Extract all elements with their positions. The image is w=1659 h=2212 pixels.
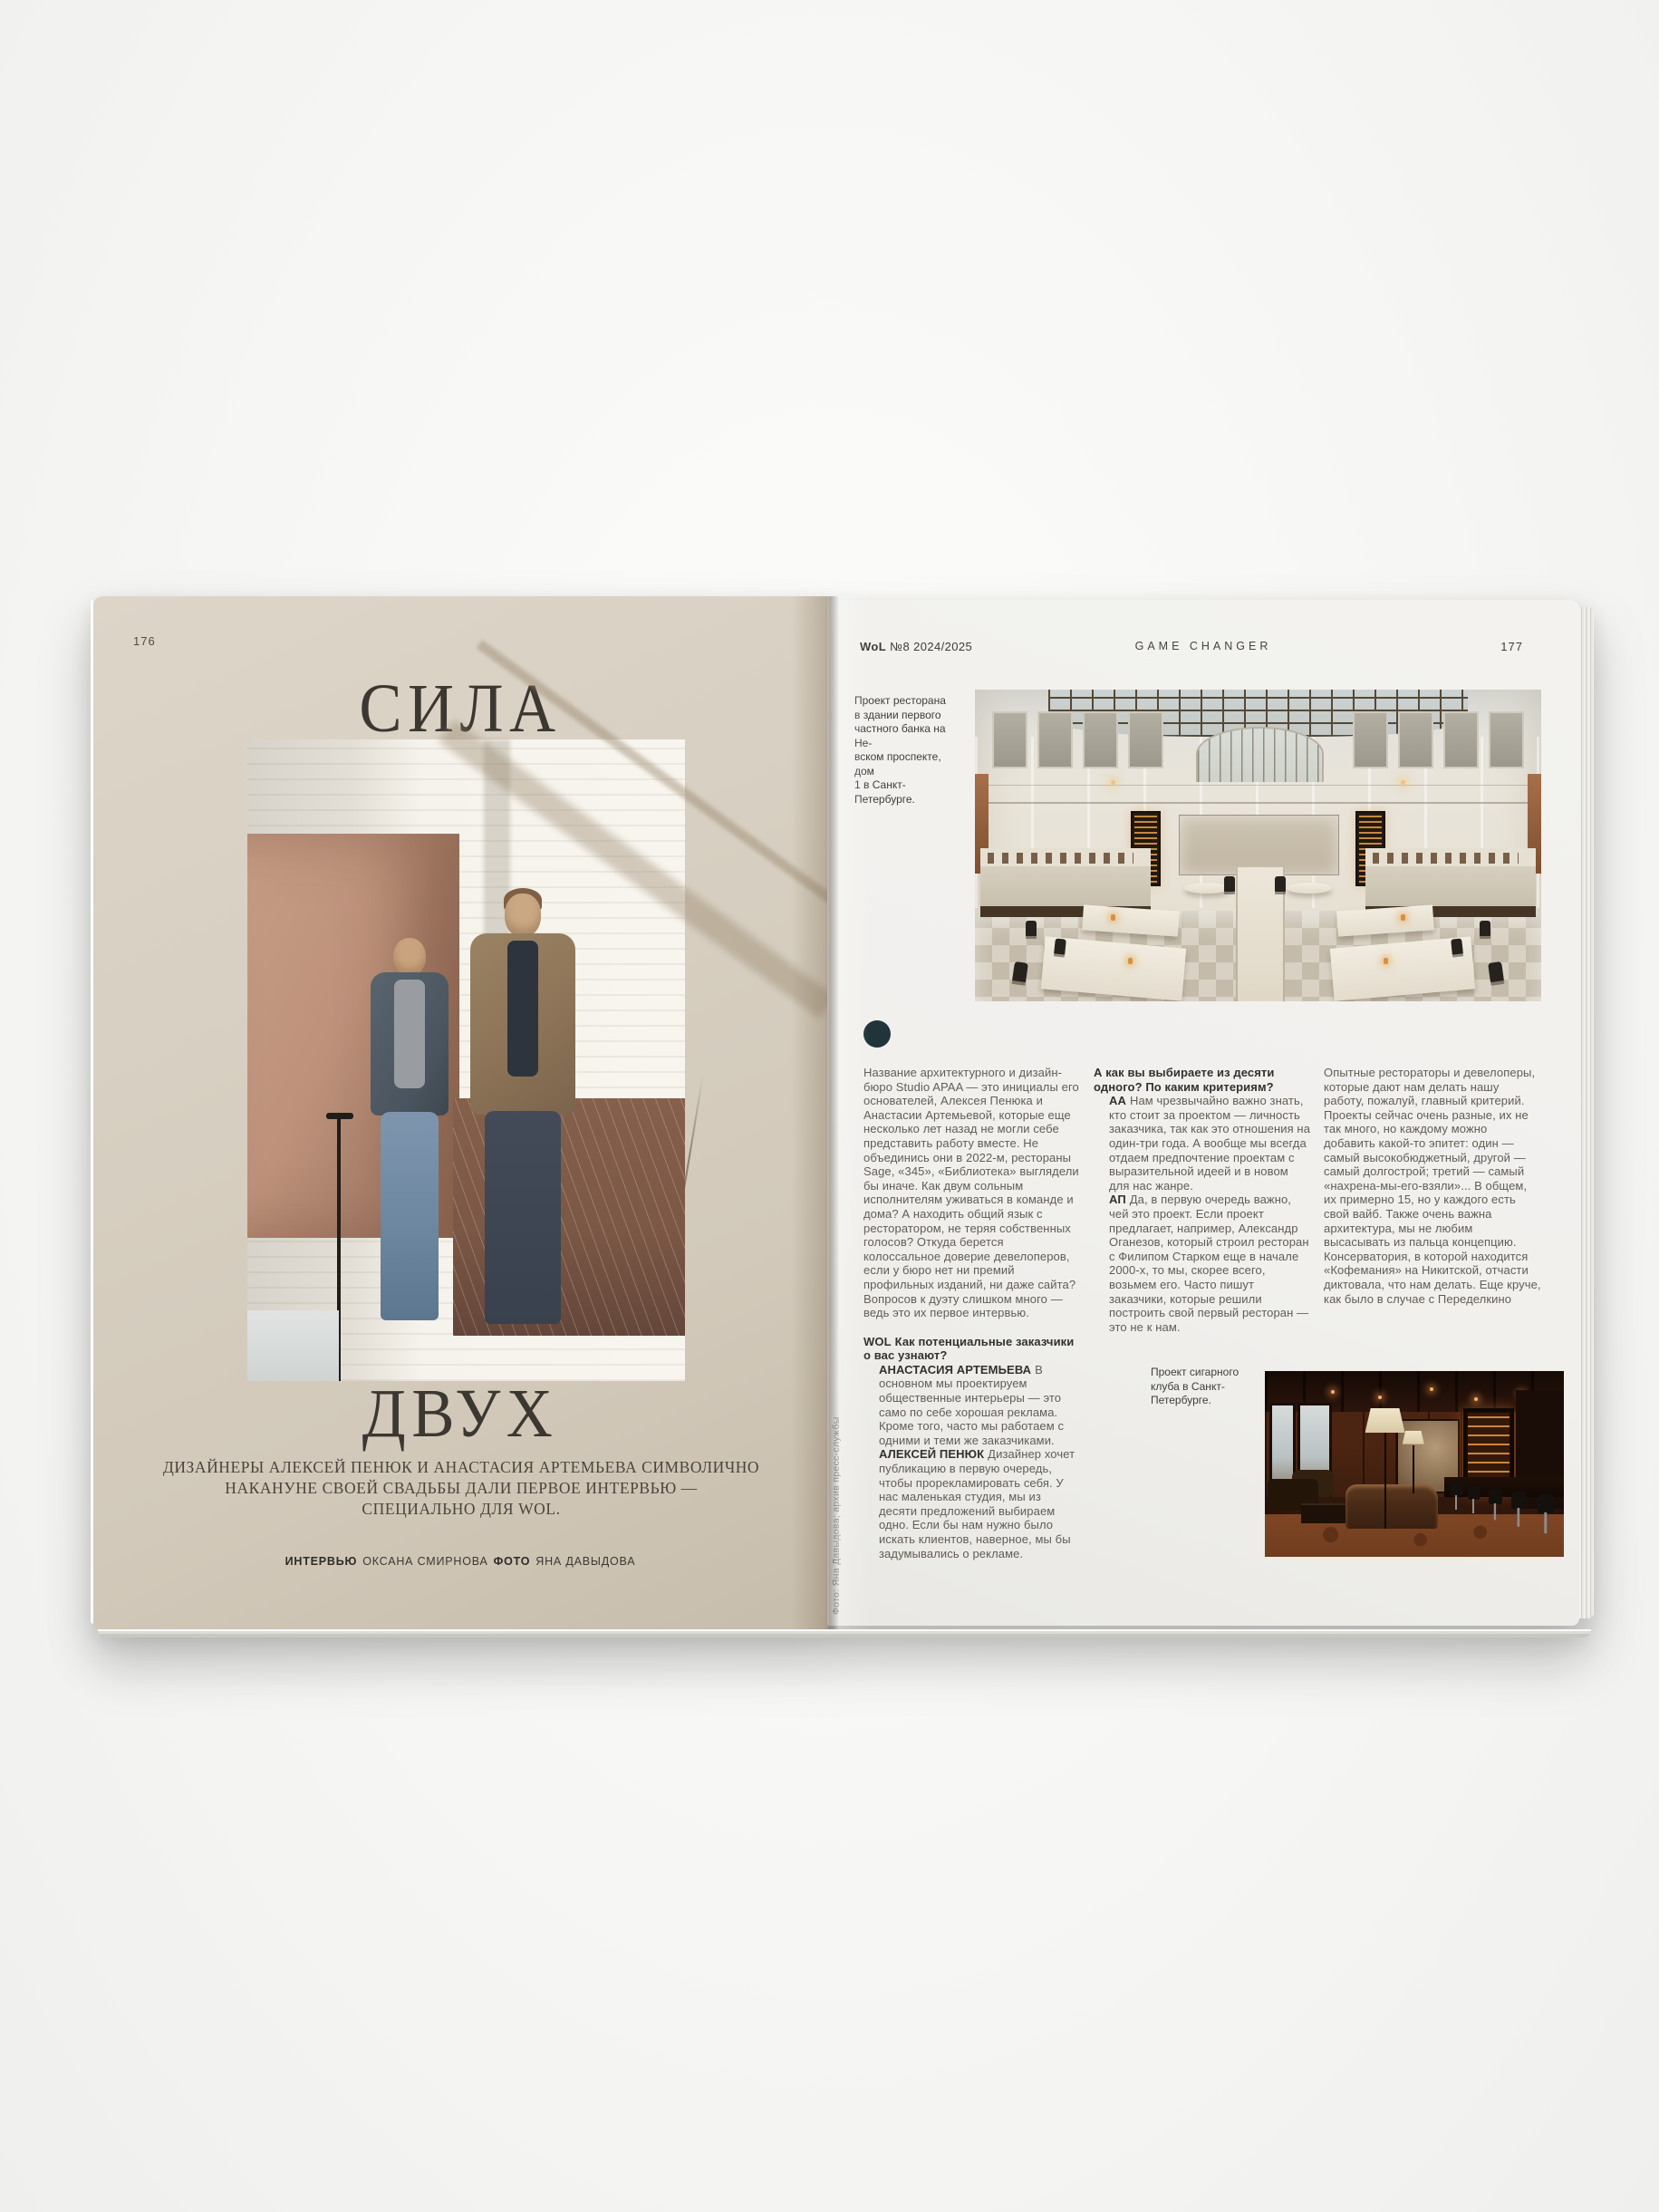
- answer-aa: ААНам чрезвычайно важно знать, кто стоит…: [1094, 1094, 1311, 1193]
- bar-stool: [1511, 1492, 1527, 1510]
- floor-lamp-head: [326, 1113, 353, 1119]
- right-page-stack: [1579, 607, 1594, 1618]
- vertical-photo-credit: Фото: Яна Давыдова; архив пресс-службы: [831, 1377, 842, 1615]
- question-1: WOLКак потенциальные заказчики о вас узн…: [863, 1335, 1081, 1363]
- clerestory-window: [1037, 711, 1073, 768]
- designer-man-figure: [467, 893, 581, 1381]
- floor-lamp-shade: [1365, 1408, 1405, 1433]
- answer-text: Дизайнер хочет публикацию в первую очере…: [879, 1447, 1075, 1560]
- man-shirt: [507, 941, 538, 1077]
- woman-jeans: [381, 1112, 439, 1320]
- section-label: GAME CHANGER: [827, 640, 1579, 652]
- speaker-name: АЛЕКСЕЙ ПЕНЮК: [879, 1447, 984, 1461]
- magazine-spread: 176 СИЛА: [91, 591, 1596, 1637]
- dining-chair: [1224, 876, 1235, 892]
- designers-portrait-photo: [247, 739, 685, 1381]
- left-page: 176 СИЛА: [93, 596, 827, 1629]
- speaker-name: АП: [1109, 1193, 1126, 1206]
- floor-lamp-shade-small: [1403, 1431, 1424, 1444]
- article-subtitle: ДИЗАЙНЕРЫ АЛЕКСЕЙ ПЕНЮК И АНАСТАСИЯ АРТЕ…: [157, 1457, 765, 1520]
- question-1-label: WOL: [863, 1335, 892, 1348]
- kitchen-back-wall: [1179, 815, 1339, 875]
- clerestory-window: [1443, 711, 1479, 768]
- cigar-club-photo: [1265, 1371, 1564, 1557]
- clerestory-window: [1489, 711, 1524, 768]
- byline-credit: ИНТЕРВЬЮОКСАНА СМИРНОВАФОТОЯНА ДАВЫДОВА: [93, 1555, 827, 1568]
- man-trousers: [485, 1111, 561, 1324]
- floor-lamp-pole: [1384, 1433, 1386, 1530]
- question-2: А как вы выбираете из десяти одного? По …: [1094, 1066, 1311, 1094]
- question-1-text: Как потенциальные заказчики о вас узнают…: [863, 1335, 1074, 1363]
- bank-hall-restaurant-photo: [975, 690, 1541, 1001]
- clerestory-window: [1128, 711, 1163, 768]
- bar-stool: [1451, 1483, 1462, 1496]
- bar-stool: [1468, 1486, 1480, 1500]
- bar-stool: [1489, 1489, 1502, 1504]
- text-column-3: Опытные рестораторы и девелоперы, которы…: [1324, 1066, 1541, 1306]
- table-candle: [1111, 914, 1115, 921]
- main-cornice: [975, 802, 1541, 804]
- pendant-light: [1111, 780, 1115, 785]
- answer-text: Да, в первую очередь важно, чей это прое…: [1109, 1193, 1309, 1333]
- right-page-number: 177: [1500, 640, 1523, 653]
- dining-chair: [1480, 921, 1490, 936]
- running-header: WoL №8 2024/2025 GAME CHANGER 177: [827, 640, 1579, 656]
- article-title-line2: ДВУХ: [119, 1379, 801, 1448]
- cigar-club-photo-caption: Проект сигарного клуба в Санкт- Петербур…: [1151, 1366, 1268, 1408]
- speaker-name: АА: [1109, 1094, 1126, 1107]
- dining-chair: [1012, 961, 1028, 982]
- dining-chair: [1054, 939, 1066, 955]
- speaker-name: АНАСТАСИЯ АРТЕМЬЕВА: [879, 1363, 1031, 1376]
- floor-corner: [247, 1310, 339, 1381]
- table-candle: [1384, 958, 1388, 964]
- answer-artemyeva: АНАСТАСИЯ АРТЕМЬЕВАВ основном мы проекти…: [863, 1363, 1081, 1448]
- text-column-2: А как вы выбираете из десяти одного? По …: [1094, 1066, 1311, 1334]
- designer-woman-figure: [365, 938, 453, 1381]
- clerestory-window: [992, 711, 1027, 768]
- dining-chair: [1275, 876, 1286, 892]
- woman-sweater: [394, 980, 425, 1088]
- continuation-paragraph: Опытные рестораторы и девелоперы, которы…: [1324, 1066, 1541, 1306]
- left-page-number: 176: [133, 634, 156, 648]
- table-candle: [1128, 958, 1133, 964]
- ceiling-downlight: [1474, 1397, 1478, 1401]
- floor-lamp-pole-small: [1413, 1445, 1414, 1493]
- intro-paragraph: Название архитектурного и дизайн-бюро St…: [863, 1066, 1081, 1320]
- woman-head: [393, 938, 426, 976]
- bottom-page-stack: [98, 1629, 1591, 1637]
- dining-chair: [1451, 939, 1463, 955]
- table-candle: [1401, 914, 1405, 921]
- text-column-1: Название архитектурного и дизайн-бюро St…: [863, 1066, 1081, 1560]
- answer-text: Нам чрезвычайно важно знать, кто стоит з…: [1109, 1094, 1310, 1193]
- dining-chair: [1488, 961, 1504, 982]
- central-arched-window: [1196, 727, 1325, 781]
- restaurant-photo-caption: Проект ресторана в здании первого частно…: [854, 694, 956, 807]
- byline-photographer: ЯНА ДАВЫДОВА: [535, 1555, 635, 1568]
- answer-ap: АПДа, в первую очередь важно, чей это пр…: [1094, 1193, 1311, 1334]
- answer-penyuk: АЛЕКСЕЙ ПЕНЮКДизайнер хочет публикацию в…: [863, 1447, 1081, 1560]
- photo-backdrop: 176 СИЛА: [0, 0, 1659, 2212]
- byline-interviewer: ОКСАНА СМИРНОВА: [362, 1555, 487, 1568]
- section-bullet-circle: [863, 1020, 891, 1048]
- dining-chair: [1026, 921, 1037, 936]
- clerestory-window: [1398, 711, 1433, 768]
- clerestory-window: [1083, 711, 1118, 768]
- byline-role-photo: ФОТО: [494, 1555, 531, 1568]
- upper-cornice: [975, 785, 1541, 786]
- byline-role-interview: ИНТЕРВЬЮ: [285, 1555, 358, 1568]
- bar-stool: [1538, 1494, 1555, 1514]
- right-page: WoL №8 2024/2025 GAME CHANGER 177 Проект…: [827, 600, 1579, 1626]
- ceiling-downlight: [1331, 1390, 1335, 1394]
- pendant-light: [1401, 780, 1405, 785]
- man-head: [505, 893, 541, 937]
- clerestory-window: [1353, 711, 1388, 768]
- leather-sofa: [1346, 1484, 1438, 1529]
